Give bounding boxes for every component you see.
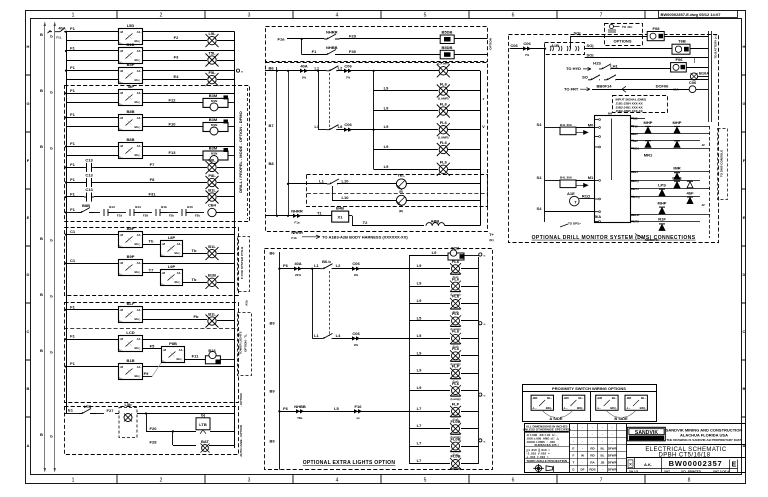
svg-text:7%: 7% — [525, 53, 530, 57]
svg-text:D: D — [27, 272, 30, 277]
svg-text:2: 2 — [160, 13, 163, 19]
svg-text:4bF: 4bF — [686, 190, 694, 195]
svg-text:TaP: TaP — [127, 84, 134, 89]
svg-text:L9: L9 — [384, 144, 389, 149]
svg-text:SO|: SO| — [574, 31, 581, 36]
svg-text:L2: L2 — [336, 263, 341, 268]
svg-text:F1: F1 — [70, 65, 75, 70]
svg-text:NHRR: NHRR — [326, 30, 338, 35]
svg-text:-: - — [602, 468, 603, 472]
svg-text:L5b: L5b — [124, 402, 132, 407]
svg-text:TO DPS>: TO DPS> — [568, 222, 581, 226]
svg-text:SCL PRINTED: SCL PRINTED — [681, 470, 702, 474]
svg-text:C13: C13 — [85, 157, 93, 162]
svg-text:T5L: T5L — [208, 50, 216, 55]
svg-text:A1-: A1- — [137, 308, 142, 312]
svg-text:FL6: FL6 — [452, 346, 460, 351]
svg-text:A: A — [27, 443, 30, 448]
svg-text:B8B: B8B — [126, 137, 134, 142]
svg-text:MT2: MT2 — [633, 187, 639, 191]
svg-text:SO|: SO| — [587, 52, 594, 57]
svg-text:L1: L1 — [314, 333, 319, 338]
svg-text:o: o — [484, 254, 486, 258]
svg-text:G: G — [26, 101, 29, 106]
svg-text:G: G — [742, 101, 745, 106]
svg-text:MR1: MR1 — [644, 153, 653, 158]
svg-text:L..: L.. — [162, 282, 166, 286]
svg-text:B: B — [40, 144, 43, 149]
svg-text:B16: B16 — [187, 205, 193, 209]
svg-text:F1: F1 — [70, 112, 75, 117]
svg-text:4: 4 — [336, 478, 339, 484]
svg-text:F13: F13 — [169, 150, 177, 155]
svg-text:TO DMS CONSOLE: TO DMS CONSOLE — [720, 150, 724, 177]
svg-text:BL(-: BL(- — [135, 374, 141, 378]
svg-text:7: 7 — [600, 13, 603, 19]
svg-text:5/A: 5/A — [595, 214, 601, 219]
svg-text:BK(-: BK(- — [610, 406, 616, 410]
svg-text:L9P: L9P — [168, 264, 176, 269]
svg-text:TO HYD: TO HYD — [566, 66, 581, 71]
svg-text:L8L: L8L — [208, 158, 216, 163]
svg-text:Tb: Tb — [192, 248, 197, 253]
svg-text:LTB: LTB — [199, 422, 207, 427]
svg-text:-: - — [592, 440, 593, 444]
svg-text:A1B: A1B — [551, 43, 559, 48]
svg-text:L..: L.. — [120, 127, 124, 131]
svg-text:F1: F1 — [70, 177, 75, 182]
svg-text:M1N: M1N — [211, 123, 217, 127]
svg-text:BL-: BL- — [641, 396, 646, 400]
svg-text:FL6: FL6 — [440, 120, 448, 125]
svg-text:FL6: FL6 — [440, 160, 448, 165]
svg-text:F10: F10 — [169, 122, 177, 127]
svg-text:-BR: -BR — [626, 396, 632, 400]
svg-text:B4B: B4B — [336, 206, 344, 211]
svg-text:F1a: F1a — [278, 36, 286, 41]
svg-text:W: W — [581, 454, 584, 458]
svg-text:L1: L1 — [314, 65, 319, 70]
svg-text:B: B — [40, 236, 43, 241]
svg-text:-: - — [582, 433, 583, 437]
svg-text:F1: F1 — [70, 88, 75, 93]
svg-text:L9: L9 — [417, 263, 422, 268]
svg-text:B3M: B3M — [209, 117, 218, 122]
svg-text:D: D — [743, 272, 746, 277]
svg-text:F1: F1 — [70, 304, 75, 309]
svg-text:-: - — [602, 426, 603, 430]
svg-text:E: E — [732, 462, 737, 469]
svg-text:F29: F29 — [143, 214, 149, 218]
svg-text:H1S: H1S — [593, 61, 601, 66]
svg-text:L5: L5 — [334, 406, 339, 411]
svg-text:DFWR: DFWR — [608, 468, 618, 472]
svg-text:F: F — [572, 454, 574, 458]
svg-text:V: V — [482, 124, 485, 129]
svg-text:L..: L.. — [120, 41, 124, 45]
svg-text:BL-: BL- — [612, 396, 617, 400]
svg-text:BAT: BAT — [201, 439, 209, 444]
svg-text:L..: L.. — [120, 155, 124, 159]
svg-text:NHRR: NHRR — [291, 208, 303, 213]
svg-text:L10: L10 — [342, 178, 350, 183]
svg-text:T+: T+ — [489, 232, 494, 237]
svg-text:-M: -M — [120, 69, 124, 73]
svg-text:L..: L.. — [120, 102, 124, 106]
svg-text:BK(-: BK(- — [546, 406, 552, 410]
svg-text:F1a: F1a — [294, 220, 300, 224]
svg-text:F27: F27 — [107, 408, 115, 413]
svg-text:-L..: -L.. — [532, 406, 537, 410]
svg-text:A1E: A1E — [567, 191, 575, 196]
svg-text:A0b: A0b — [245, 300, 249, 306]
svg-text:RDS: RDS — [589, 468, 595, 472]
svg-text:F29: F29 — [349, 34, 357, 39]
svg-text:-: - — [582, 447, 583, 451]
svg-text:(LA MP): (LA MP) — [437, 62, 448, 66]
svg-text:BL(-: BL(- — [135, 317, 141, 321]
svg-text:B8: B8 — [268, 161, 274, 166]
svg-text:A1-: A1- — [137, 261, 142, 265]
svg-text:B5DB: B5DB — [442, 45, 453, 50]
svg-text:C06: C06 — [344, 63, 352, 68]
svg-text:TCB: TCB — [451, 246, 459, 251]
svg-text:F28: F28 — [150, 440, 158, 445]
svg-text:-M: -M — [120, 91, 124, 95]
svg-text:-M: -M — [120, 365, 124, 369]
svg-text:B: B — [40, 32, 43, 37]
svg-text:-: - — [612, 433, 613, 437]
svg-text:BL(-: BL(- — [135, 100, 141, 104]
svg-text:TEL: TEL — [397, 173, 405, 178]
svg-text:F16: F16 — [355, 404, 363, 409]
svg-text:B16A: B16A — [699, 71, 709, 76]
svg-text:T1: T1 — [317, 210, 322, 215]
svg-text:-: - — [592, 426, 593, 430]
svg-text:FL0B: FL0B — [451, 436, 461, 441]
svg-text:A1-: A1- — [137, 49, 142, 53]
svg-text:-BR: -BR — [532, 396, 538, 400]
svg-text:B5DB: B5DB — [442, 30, 453, 35]
svg-text:TO BATTERY (+): TO BATTERY (+) — [714, 35, 718, 58]
svg-text:F6: F6 — [283, 406, 288, 411]
svg-text:-M: -M — [162, 271, 166, 275]
svg-text:3: 3 — [248, 478, 251, 484]
svg-text:A1-: A1- — [137, 116, 142, 120]
svg-text:7%: 7% — [346, 75, 351, 79]
svg-text:FL6: FL6 — [440, 140, 448, 145]
svg-text:F2b: F2b — [195, 214, 201, 218]
svg-text:MHP: MHP — [658, 201, 667, 206]
svg-text:DF: DF — [581, 468, 585, 472]
svg-text:OPTION - TL: OPTION - TL — [244, 334, 248, 352]
svg-text:C06: C06 — [510, 43, 518, 48]
svg-text:B9: B9 — [269, 321, 275, 326]
svg-text:L..: L.. — [120, 244, 124, 248]
svg-text:B13: B13 — [109, 205, 115, 209]
svg-text:A1-: A1- — [137, 233, 142, 237]
svg-text:A SIDE: A SIDE — [549, 416, 563, 421]
svg-text:-M: -M — [120, 30, 124, 34]
svg-text:5%: 5% — [302, 75, 307, 79]
svg-text:20%: 20% — [295, 273, 301, 277]
svg-text:BL(-: BL(- — [135, 270, 141, 274]
svg-text:DFWR: DFWR — [608, 454, 618, 458]
svg-text:F11: F11 — [192, 354, 199, 359]
svg-text:xx: xx — [356, 416, 360, 420]
svg-text:L2: L2 — [338, 65, 343, 70]
svg-text:FLP: FLP — [452, 402, 460, 407]
svg-text:DFWR: DFWR — [608, 447, 618, 451]
svg-text:F9: F9 — [144, 371, 149, 376]
svg-text:X1: X1 — [338, 215, 344, 220]
svg-text:MHP: MHP — [633, 213, 640, 217]
svg-text:PROXIMITY SWITCH WIRING OPTION: PROXIMITY SWITCH WIRING OPTIONS — [552, 386, 626, 391]
svg-text:5: 5 — [424, 478, 427, 484]
svg-text:THE DRAWING IS SANDVIK AB PROP: THE DRAWING IS SANDVIK AB PROPRIETARY DA… — [666, 438, 742, 442]
svg-text:T2: T2 — [363, 220, 368, 225]
svg-text:B1b: B1b — [161, 205, 167, 209]
svg-text:40A: 40A — [294, 261, 301, 266]
svg-text:B SIDE: B SIDE — [614, 416, 628, 421]
svg-text:F19: F19 — [117, 214, 123, 218]
svg-text:-: - — [612, 426, 613, 430]
svg-text:LCD: LCD — [126, 330, 134, 335]
svg-text:LTB: LTB — [84, 404, 92, 409]
svg-text:(B): (B) — [399, 209, 403, 213]
svg-text:FL6: FL6 — [452, 259, 460, 264]
svg-text:- OPTION: - OPTION — [239, 393, 243, 406]
svg-text:L4: L4 — [336, 333, 341, 338]
svg-text:B16: B16 — [208, 348, 216, 353]
svg-text:C06: C06 — [523, 41, 531, 46]
svg-text:T7: T7 — [149, 267, 154, 272]
svg-text:F5: F5 — [150, 344, 155, 349]
svg-text:F30: F30 — [349, 49, 357, 54]
svg-text:SH 1/2: SH 1/2 — [629, 470, 639, 474]
svg-text:6: 6 — [512, 13, 515, 19]
svg-text:L5: L5 — [417, 315, 422, 320]
svg-text:L5L: L5L — [208, 31, 216, 36]
svg-text:FL6: FL6 — [452, 381, 460, 386]
svg-text:-M: -M — [120, 337, 124, 341]
svg-text:-: - — [612, 440, 613, 444]
svg-text:S4: S4 — [537, 206, 543, 211]
svg-text:BW00002357: BW00002357 — [669, 459, 723, 468]
svg-text:F5L: F5L — [208, 70, 216, 75]
svg-text:B4L 30A: B4L 30A — [560, 123, 573, 127]
svg-text:A1-: A1- — [137, 91, 142, 95]
svg-text:-M: -M — [163, 348, 167, 352]
svg-text:MHP: MHP — [673, 120, 682, 125]
svg-text:BB0F14: BB0F14 — [597, 84, 613, 89]
svg-text:C13: C13 — [85, 173, 93, 178]
svg-text:F1: F1 — [312, 49, 317, 54]
svg-text:(LAMP): (LAMP) — [438, 97, 449, 101]
svg-text:BL: BL — [601, 447, 605, 451]
svg-text:DFWR: DFWR — [608, 461, 618, 465]
svg-text:F06: F06 — [676, 57, 684, 62]
svg-text:(B): (B) — [489, 238, 493, 242]
svg-text:L..: L.. — [120, 60, 124, 64]
svg-text:S4: S4 — [537, 122, 543, 127]
svg-text:BW00002357-E.dwg 05/12 14:07: BW00002357-E.dwg 05/12 14:07 — [661, 12, 722, 17]
svg-text:-: - — [573, 433, 574, 437]
svg-text:E4: E4 — [174, 74, 180, 79]
svg-text:F2b: F2b — [169, 214, 175, 218]
svg-text:BL(-: BL(- — [135, 346, 141, 350]
svg-text:SO: SO — [582, 74, 588, 79]
svg-text:OPTIONAL EXTRA LIGHTS OPTION: OPTIONAL EXTRA LIGHTS OPTION — [303, 460, 396, 466]
svg-text:C1: C1 — [70, 258, 76, 263]
svg-text:L..: L.. — [163, 359, 167, 363]
svg-text:L..: L.. — [162, 253, 166, 257]
svg-text:OPTIONS: OPTIONS — [613, 39, 631, 44]
svg-text:F6: F6 — [283, 263, 288, 268]
svg-text:-M: -M — [120, 144, 124, 148]
svg-text:C1: C1 — [70, 229, 76, 234]
svg-text:F1: F1 — [70, 46, 75, 51]
svg-text:A1-: A1- — [177, 271, 182, 275]
svg-text:F3: F3 — [174, 55, 179, 60]
svg-text:IMR: IMR — [673, 166, 680, 171]
svg-text:H: H — [27, 44, 30, 49]
svg-text:B9P: B9P — [127, 254, 135, 259]
svg-text:A1-: A1- — [137, 30, 142, 34]
svg-text:L..: L.. — [120, 319, 124, 323]
svg-text:B8P: B8P — [127, 226, 135, 231]
svg-text:BL(-: BL(- — [135, 78, 141, 82]
svg-text:J2: J2 — [701, 203, 705, 207]
svg-text:OPTIONAL DRILL MONITOR SYSTEM: OPTIONAL DRILL MONITOR SYSTEM (DMS) CONN… — [532, 235, 696, 241]
svg-text:L9: L9 — [384, 164, 389, 169]
svg-text:BL(-: BL(- — [175, 251, 181, 255]
svg-text:B: B — [40, 348, 43, 353]
svg-text:C13: C13 — [85, 187, 93, 192]
svg-text:B3M: B3M — [209, 146, 218, 151]
svg-text:L9: L9 — [417, 281, 422, 286]
svg-text:T6B: T6B — [678, 39, 686, 44]
svg-text:FL6: FL6 — [452, 329, 460, 334]
svg-text:J5B2-J8B5 XXX-XX: J5B2-J8B5 XXX-XX — [616, 109, 643, 113]
svg-text:TBL: TBL — [297, 416, 303, 420]
svg-text:-M: -M — [120, 116, 124, 120]
svg-text:F1: F1 — [70, 26, 75, 31]
svg-text:-: - — [582, 440, 583, 444]
svg-text:40A: 40A — [300, 63, 307, 68]
svg-text:BL(-: BL(- — [135, 39, 141, 43]
svg-text:L7: L7 — [417, 441, 422, 446]
svg-text:TO A1B3-A2B BODY HARNESS (XXX: TO A1B3-A2B BODY HARNESS (XXXXXX-XX) — [322, 234, 408, 239]
svg-text:L9: L9 — [432, 250, 437, 255]
svg-text:BL(-: BL(- — [175, 280, 181, 284]
svg-text:BK(-: BK(- — [640, 406, 646, 410]
svg-text:FL6: FL6 — [452, 294, 460, 299]
svg-text:(Lamp): (Lamp) — [451, 397, 461, 401]
svg-text:L8P: L8P — [168, 235, 176, 240]
svg-text:A1-: A1- — [137, 337, 142, 341]
svg-text:B: B — [27, 386, 30, 391]
svg-text:F1: F1 — [70, 334, 75, 339]
svg-text:BL(-: BL(- — [135, 242, 141, 246]
svg-text:B8B: B8B — [126, 109, 134, 114]
svg-text:BL-: BL- — [578, 396, 583, 400]
svg-text:C06: C06 — [352, 261, 360, 266]
svg-text:C06: C06 — [689, 80, 697, 85]
svg-text:C06: C06 — [344, 122, 352, 127]
svg-text:-M: -M — [120, 261, 124, 265]
svg-text:S4: S4 — [537, 175, 543, 180]
svg-text:o: o — [484, 394, 486, 398]
svg-text:B1L: B1L — [208, 244, 216, 249]
svg-text:B3M: B3M — [209, 93, 218, 98]
svg-text:J2: J2 — [701, 143, 705, 147]
svg-text:-BR: -BR — [563, 396, 569, 400]
svg-text:A1-: A1- — [137, 144, 142, 148]
svg-text:F2: F2 — [174, 35, 179, 40]
svg-text:P8B: P8B — [169, 341, 177, 346]
svg-text:A1-: A1- — [179, 348, 184, 352]
svg-text:FL6: FL6 — [440, 81, 448, 86]
svg-text:-: - — [582, 461, 583, 465]
svg-text:FL6: FL6 — [452, 311, 460, 316]
svg-text:A1-: A1- — [177, 242, 182, 246]
svg-text:F8: F8 — [150, 177, 155, 182]
svg-text:L9: L9 — [417, 350, 422, 355]
svg-text:3: 3 — [248, 13, 251, 19]
svg-text:TO FRT: TO FRT — [564, 87, 579, 92]
svg-text:CB4: CB4 — [208, 203, 217, 208]
svg-text:M1N: M1N — [211, 99, 217, 103]
svg-text:-M: -M — [120, 308, 124, 312]
svg-text:o: o — [241, 70, 243, 74]
svg-text:F08: F08 — [653, 26, 661, 31]
svg-text:Fb: Fb — [194, 314, 199, 319]
svg-text:B7: B7 — [268, 123, 274, 128]
svg-text:L..: L.. — [120, 80, 124, 84]
svg-text:L7: L7 — [417, 423, 422, 428]
svg-text:P-TOD SYSTEM PTO-B: P-TOD SYSTEM PTO-B — [240, 246, 244, 279]
svg-text:NHRR: NHRR — [291, 230, 303, 235]
svg-text:C06: C06 — [352, 331, 360, 336]
svg-text:B: B — [40, 432, 43, 437]
svg-text:Tb: Tb — [149, 239, 154, 244]
svg-text:-: - — [592, 433, 593, 437]
svg-text:SHT: SHT — [664, 470, 670, 474]
svg-text:BL: BL — [601, 454, 605, 458]
svg-text:NHBB: NHBB — [294, 404, 306, 409]
svg-text:L7: L7 — [417, 406, 422, 411]
svg-text:ALACHUA FLORIDA USA: ALACHUA FLORIDA USA — [680, 432, 728, 437]
svg-text:F1: F1 — [70, 361, 75, 366]
svg-text:SO|: SO| — [587, 43, 594, 48]
svg-text:R1Q: R1Q — [582, 194, 590, 199]
svg-text:R1F: R1F — [658, 216, 666, 221]
svg-text:2: 2 — [160, 478, 163, 484]
svg-text:B9: B9 — [269, 389, 275, 394]
svg-text:B1B: B1B — [126, 358, 134, 363]
svg-text:FLP: FLP — [452, 363, 460, 368]
svg-text:E: E — [743, 215, 746, 220]
svg-text:BK(-: BK(- — [577, 406, 583, 410]
svg-text:BL(-: BL(- — [177, 357, 183, 361]
svg-text:L9: L9 — [417, 298, 422, 303]
svg-text:IPPB: IPPB — [672, 176, 681, 181]
svg-text:o: o — [484, 439, 486, 443]
svg-text:F31: F31 — [149, 192, 157, 197]
svg-text:-M: -M — [162, 242, 166, 246]
svg-text:7: 7 — [600, 478, 603, 484]
